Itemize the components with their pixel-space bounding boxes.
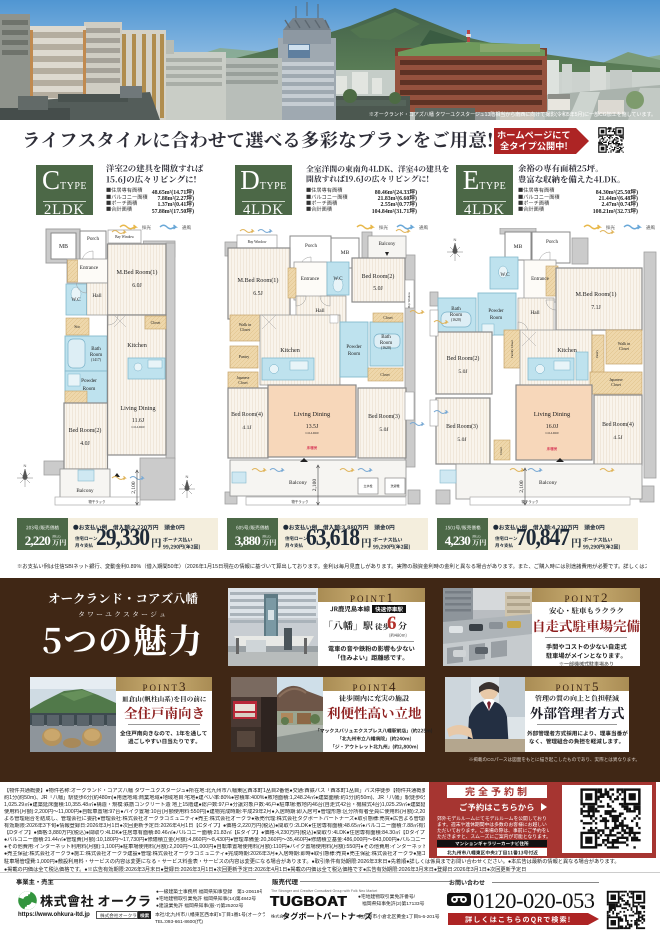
svg-text:Japanese: Japanese	[237, 376, 250, 380]
svg-text:Closet: Closet	[499, 447, 503, 455]
svg-text:床暖房: 床暖房	[547, 446, 558, 451]
svg-text:Room: Room	[348, 352, 360, 357]
svg-text:M.Bed Room(1): M.Bed Room(1)	[238, 277, 279, 284]
svg-text:Closet: Closet	[383, 316, 392, 320]
svg-text:物干ラック: 物干ラック	[89, 499, 106, 504]
svg-text:Bed Room(2): Bed Room(2)	[362, 273, 395, 280]
svg-text:Bed Room(4): Bed Room(4)	[602, 421, 634, 428]
svg-text:M.Bed Room(1): M.Bed Room(1)	[117, 269, 158, 276]
svg-text:M.Bed Room(1): M.Bed Room(1)	[576, 291, 617, 298]
svg-text:N: N	[186, 474, 189, 479]
svg-text:4.1J: 4.1J	[242, 425, 252, 431]
svg-text:Sto: Sto	[74, 324, 80, 329]
svg-text:Hall: Hall	[315, 308, 325, 314]
svg-text:Porch: Porch	[546, 239, 559, 245]
svg-text:Entrance: Entrance	[301, 276, 320, 282]
svg-text:Pantry: Pantry	[595, 349, 599, 358]
svg-text:5.0J: 5.0J	[457, 437, 467, 443]
svg-text:CO-LD60: CO-LD60	[546, 431, 559, 435]
svg-text:2,100: 2,100	[131, 481, 137, 494]
svg-text:Bath: Bath	[451, 307, 461, 312]
svg-text:Closet: Closet	[619, 346, 630, 351]
svg-text:Kitchen: Kitchen	[557, 347, 577, 354]
svg-text:Room: Room	[490, 316, 502, 321]
svg-text:Balcony: Balcony	[539, 480, 557, 486]
svg-text:6.0J: 6.0J	[132, 283, 142, 289]
svg-text:(1620): (1620)	[451, 318, 462, 322]
svg-text:Bay Window: Bay Window	[248, 240, 267, 244]
svg-text:通風: 通風	[182, 224, 191, 231]
svg-text:Kitchen: Kitchen	[280, 347, 300, 354]
svg-text:採光: 採光	[606, 224, 615, 231]
svg-text:Bed Room(4): Bed Room(4)	[231, 411, 263, 418]
svg-text:7.1J: 7.1J	[591, 305, 601, 311]
svg-text:Closet: Closet	[151, 321, 162, 325]
svg-text:Entrance: Entrance	[531, 277, 550, 282]
svg-text:通風: 通風	[646, 224, 655, 231]
svg-text:物干ラック: 物干ラック	[292, 499, 309, 504]
svg-text:13.5J: 13.5J	[306, 424, 319, 430]
svg-text:Bay Window: Bay Window	[115, 235, 134, 239]
svg-text:4.0J: 4.0J	[80, 441, 90, 447]
svg-text:16.0J: 16.0J	[546, 424, 559, 430]
svg-text:MB: MB	[59, 244, 68, 250]
svg-text:採光: 採光	[142, 224, 151, 231]
svg-text:4.5J: 4.5J	[613, 435, 623, 441]
svg-text:W.C: W.C	[71, 297, 81, 303]
svg-text:Hall: Hall	[530, 310, 540, 316]
svg-text:Family Closet: Family Closet	[510, 340, 514, 358]
svg-text:Bath: Bath	[381, 335, 391, 340]
svg-text:立水栓: 立水栓	[363, 483, 372, 488]
svg-text:床暖房: 床暖房	[307, 445, 318, 450]
svg-text:採光: 採光	[379, 224, 388, 231]
svg-text:Porch: Porch	[87, 236, 100, 242]
svg-text:洗濯機: 洗濯機	[390, 483, 399, 488]
svg-text:MB: MB	[514, 244, 523, 250]
svg-text:Bed Room(2): Bed Room(2)	[447, 355, 480, 362]
svg-text:Pantry: Pantry	[239, 354, 249, 359]
svg-text:CO-LD60: CO-LD60	[306, 431, 319, 435]
svg-text:Bed Room(3): Bed Room(3)	[368, 413, 400, 420]
svg-text:2,100: 2,100	[312, 479, 318, 492]
svg-text:(1417): (1417)	[91, 358, 102, 362]
svg-text:Balcony: Balcony	[379, 242, 396, 247]
svg-text:(1620): (1620)	[381, 346, 392, 350]
svg-text:物干ラック: 物干ラック	[522, 499, 539, 504]
svg-text:Bath: Bath	[91, 347, 101, 352]
svg-text:11.6J: 11.6J	[132, 418, 145, 424]
svg-text:Bay Window: Bay Window	[407, 291, 411, 308]
svg-text:W.C: W.C	[333, 276, 343, 282]
svg-text:Porch: Porch	[305, 243, 318, 249]
svg-text:Kitchen: Kitchen	[127, 342, 147, 349]
svg-text:Room: Room	[83, 386, 96, 392]
svg-text:Hall: Hall	[92, 293, 102, 299]
svg-text:Powder: Powder	[81, 378, 97, 384]
svg-text:Powder: Powder	[488, 309, 504, 314]
svg-text:Closet: Closet	[380, 373, 389, 377]
svg-text:5.0J: 5.0J	[373, 286, 383, 292]
svg-text:Living Dining: Living Dining	[294, 411, 331, 418]
svg-text:Powder: Powder	[346, 345, 362, 350]
svg-text:Bed Room(2): Bed Room(2)	[69, 427, 102, 434]
svg-text:Closet: Closet	[238, 381, 247, 385]
svg-text:Balcony: Balcony	[76, 488, 94, 494]
svg-text:Bed Room(3): Bed Room(3)	[446, 423, 478, 430]
svg-text:2,100: 2,100	[519, 480, 525, 493]
svg-text:N: N	[24, 463, 27, 468]
svg-text:Balcony: Balcony	[289, 480, 307, 486]
svg-text:Closet: Closet	[611, 383, 622, 387]
svg-text:Closet: Closet	[240, 327, 251, 332]
svg-text:Entrance: Entrance	[80, 265, 99, 271]
svg-text:CO-LD60: CO-LD60	[132, 425, 145, 429]
svg-text:Japanese: Japanese	[609, 378, 623, 382]
svg-text:5.0J: 5.0J	[379, 427, 389, 433]
svg-text:MB: MB	[341, 250, 350, 256]
svg-text:Living Dining: Living Dining	[120, 405, 155, 412]
svg-text:6.5J: 6.5J	[253, 291, 263, 297]
svg-text:Living Dining: Living Dining	[534, 411, 571, 418]
svg-text:W.C: W.C	[500, 272, 510, 278]
svg-text:通風: 通風	[419, 224, 428, 231]
svg-text:5.0J: 5.0J	[458, 369, 468, 375]
svg-text:N: N	[454, 237, 457, 242]
